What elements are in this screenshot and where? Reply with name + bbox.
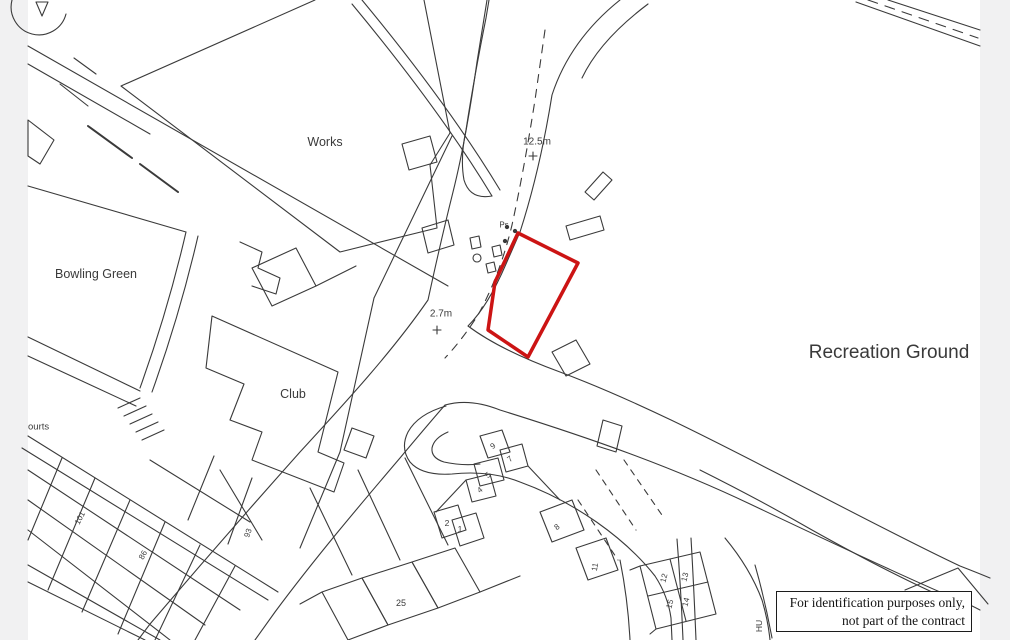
- site-plan-linework: [0, 0, 1010, 640]
- houses-lower-centre: [300, 430, 716, 640]
- buildings-works: [11, 0, 500, 306]
- roads: [138, 0, 990, 640]
- buildings-near-plot: [470, 172, 612, 376]
- site-plan: WorksBowling GreenClubRecreation Ground1…: [0, 0, 1010, 640]
- terraced-houses-bottom-left: [22, 436, 278, 640]
- railway-top-right: [856, 0, 980, 46]
- disclaimer-line2: not part of the contract: [781, 612, 965, 630]
- disclaimer-line1: For identification purposes only,: [781, 594, 965, 612]
- disclaimer-box: For identification purposes only, not pa…: [776, 591, 972, 632]
